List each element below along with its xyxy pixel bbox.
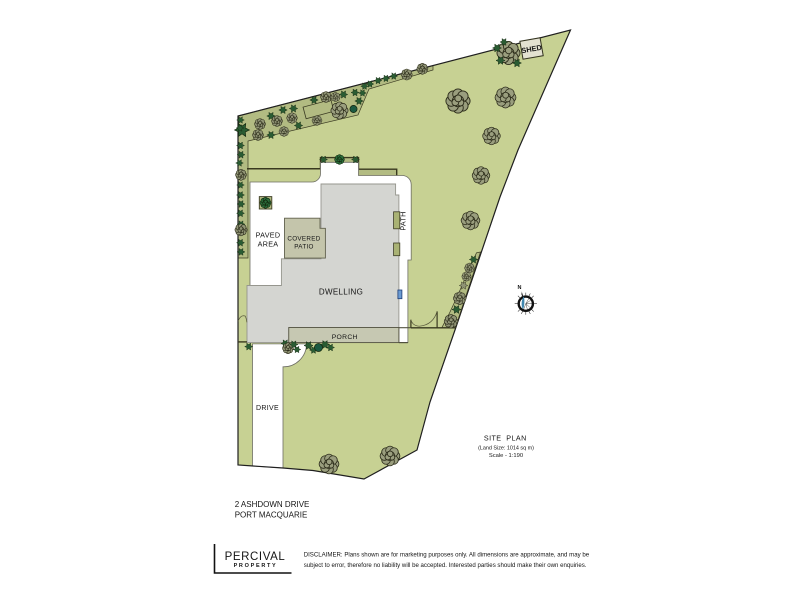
svg-text:PROPERTY: PROPERTY [234, 563, 278, 569]
svg-text:PERCIVAL: PERCIVAL [225, 551, 286, 563]
svg-text:PORT MACQUARIE: PORT MACQUARIE [235, 510, 308, 519]
svg-text:PATH: PATH [399, 211, 408, 230]
svg-text:AREA: AREA [258, 239, 279, 248]
svg-text:DISCLAIMER: Plans shown are fo: DISCLAIMER: Plans shown are for marketin… [304, 552, 590, 559]
svg-text:subject to error, therefore no: subject to error, therefore no liability… [304, 562, 587, 569]
svg-text:(Land Size: 1014 sq m): (Land Size: 1014 sq m) [478, 446, 534, 452]
svg-text:N: N [518, 285, 522, 291]
svg-text:PAVED: PAVED [256, 231, 281, 240]
svg-text:Scale - 1:190: Scale - 1:190 [489, 453, 523, 459]
svg-text:PATIO: PATIO [294, 243, 313, 250]
svg-text:PORCH: PORCH [332, 334, 358, 341]
svg-text:COVERED: COVERED [287, 235, 320, 242]
svg-text:SITE PLAN: SITE PLAN [484, 434, 527, 443]
svg-text:2 ASHDOWN DRIVE: 2 ASHDOWN DRIVE [235, 500, 310, 509]
svg-text:DWELLING: DWELLING [319, 288, 363, 297]
svg-text:DRIVE: DRIVE [256, 405, 279, 412]
